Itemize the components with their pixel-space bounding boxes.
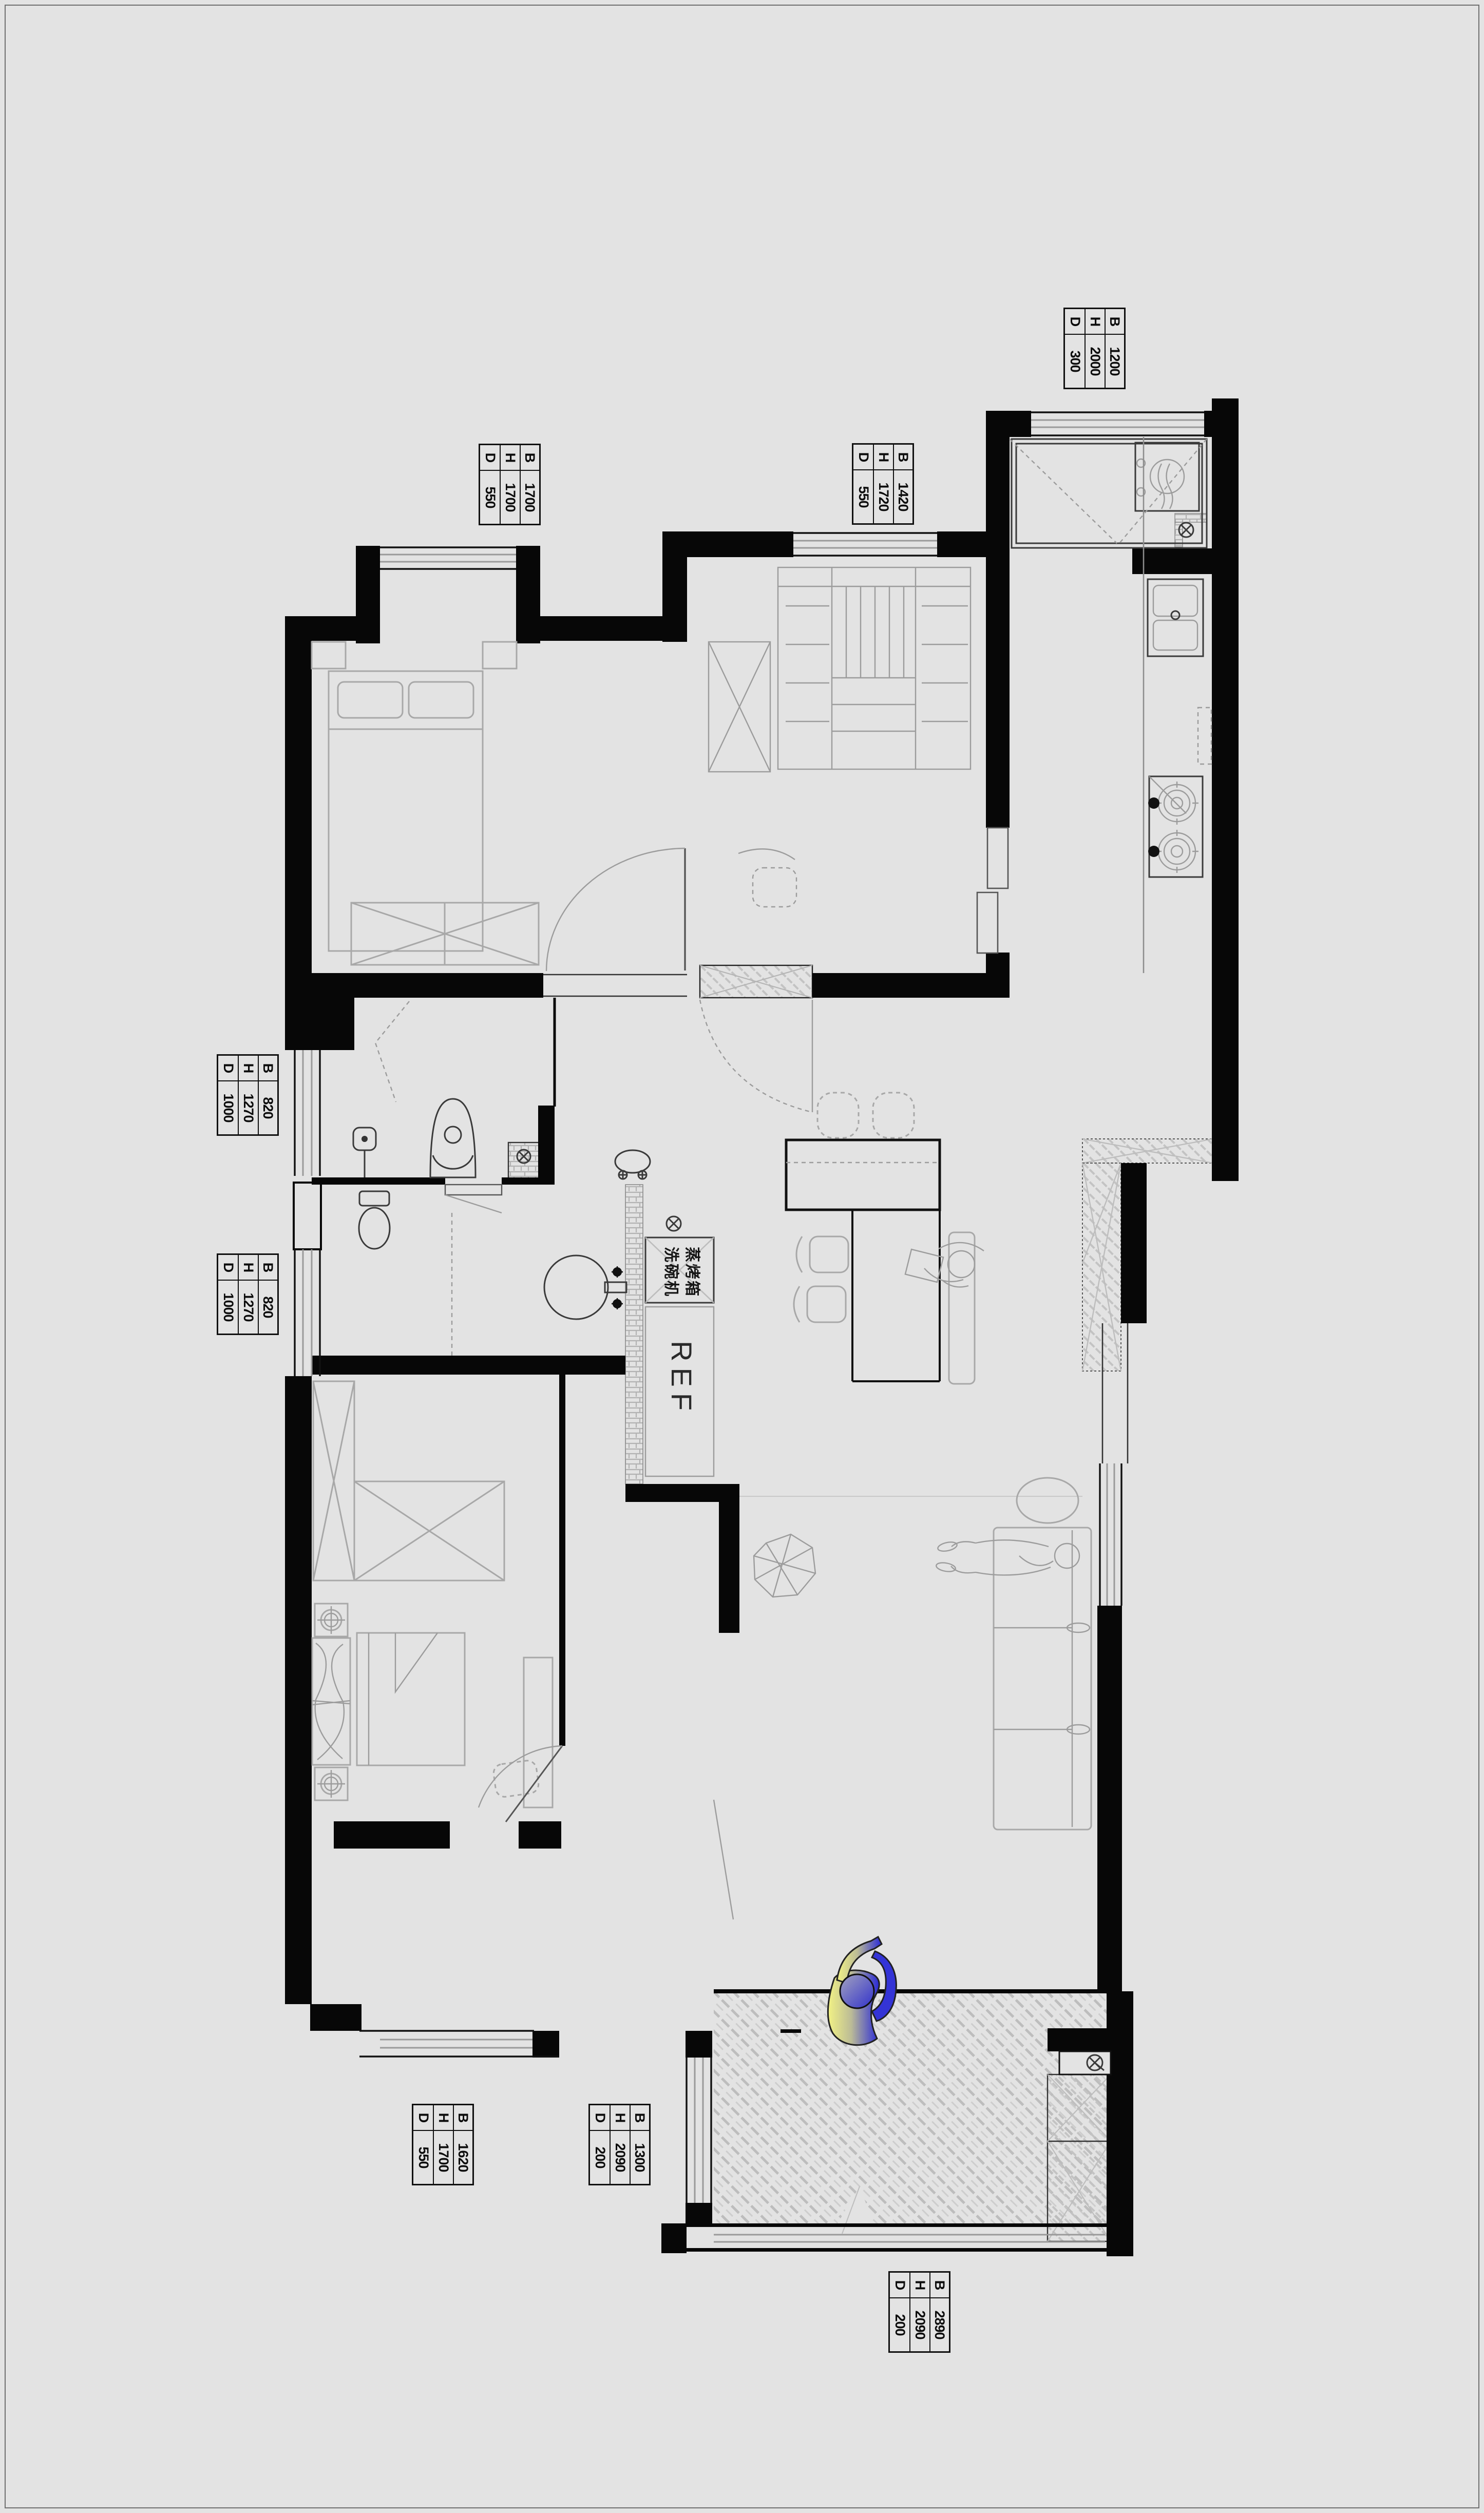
fridge-label: REF <box>648 1315 715 1443</box>
dimension-label-bedroom1-bay: B1700 H1700 D550 <box>479 444 541 525</box>
dimension-label-balcony-west: B1300 H2090 D200 <box>588 2104 651 2185</box>
dimension-label-bath1-window: B820 H1270 D1000 <box>217 1054 279 1136</box>
floor-plan-canvas: B1200 H2000 D300 B1700 H1700 D550 B1420 … <box>0 0 1484 2513</box>
appliance-text-oven-dishwasher: 蒸烤箱 洗碗机 <box>650 1240 714 1305</box>
dimension-label-closet-room: B1420 H1720 D550 <box>852 443 914 525</box>
dimension-label-bedroom2-bay: B1620 H1700 D550 <box>412 2104 474 2185</box>
dishwasher-label: 洗碗机 <box>663 1240 680 1305</box>
dimension-label-bath2-window: B820 H1270 D1000 <box>217 1253 279 1335</box>
dimension-label-balcony-south: B2890 H2090 D200 <box>888 2271 950 2353</box>
steam-oven-label: 蒸烤箱 <box>684 1240 701 1305</box>
dimension-label-window-top-right: B1200 H2000 D300 <box>1063 308 1126 389</box>
